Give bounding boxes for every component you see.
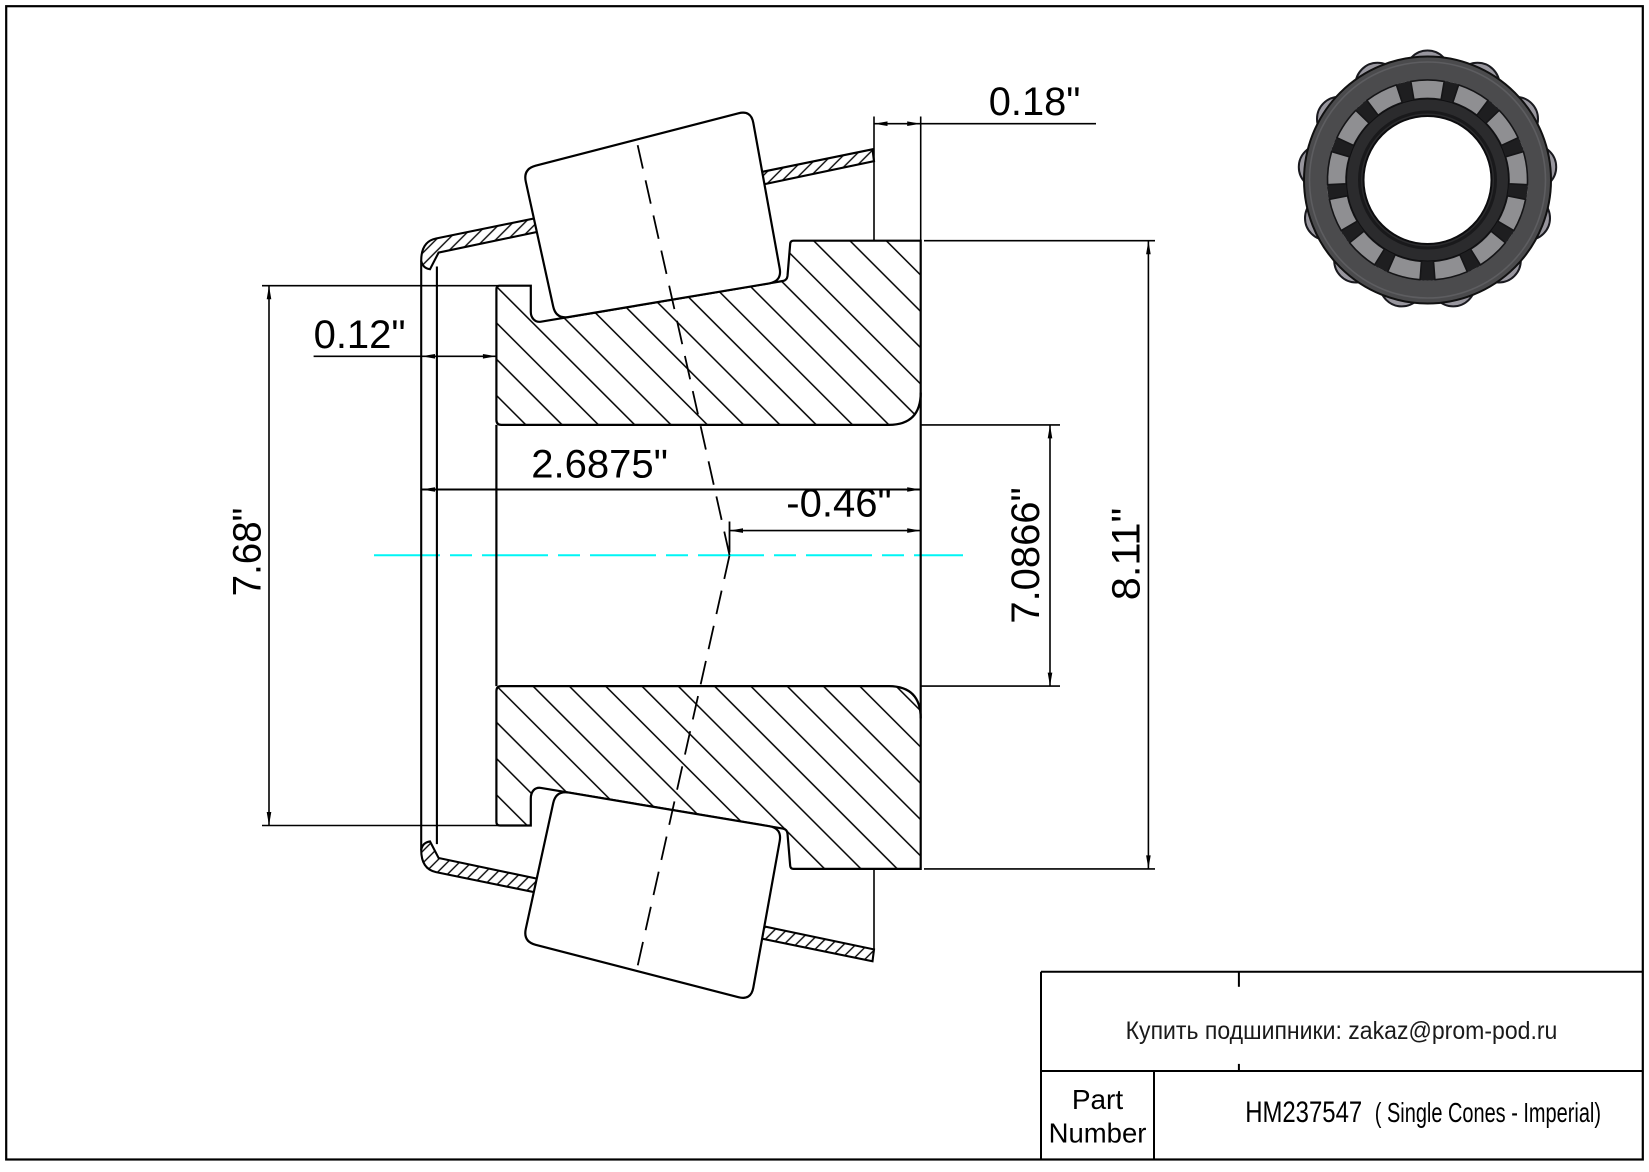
svg-text:( Single Cones - Imperial): ( Single Cones - Imperial) bbox=[1375, 1097, 1601, 1128]
svg-text:Купить подшипники: zakaz@prom-: Купить подшипники: zakaz@prom-pod.ru bbox=[1126, 1017, 1558, 1045]
svg-text:2.6875": 2.6875" bbox=[531, 443, 668, 487]
svg-text:8.11": 8.11" bbox=[1104, 508, 1148, 601]
svg-text:0.12": 0.12" bbox=[314, 313, 406, 357]
svg-text:7.68": 7.68" bbox=[226, 508, 270, 597]
svg-text:-0.46": -0.46" bbox=[786, 482, 891, 526]
svg-text:Part: Part bbox=[1072, 1084, 1124, 1115]
svg-text:HM237547: HM237547 bbox=[1245, 1096, 1362, 1129]
svg-text:7.0866": 7.0866" bbox=[1004, 487, 1048, 623]
svg-text:Number: Number bbox=[1049, 1118, 1147, 1149]
svg-text:0.18": 0.18" bbox=[989, 80, 1081, 124]
